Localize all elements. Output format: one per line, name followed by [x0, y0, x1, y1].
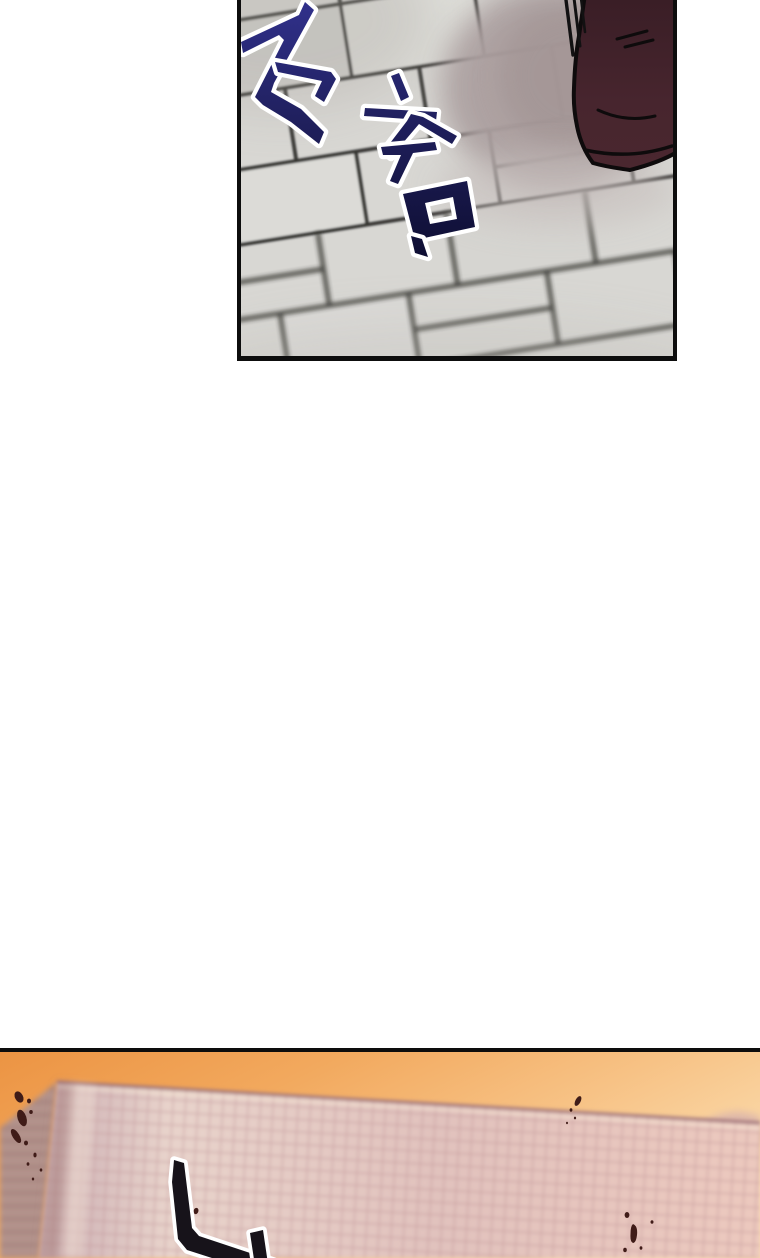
bottom-panel: 니 — [0, 1048, 760, 1258]
panel-gutter — [0, 361, 760, 1048]
sfx-partial-right-stroke — [250, 1230, 268, 1258]
boot — [574, 0, 673, 170]
bottom-panel-art — [0, 1052, 760, 1258]
top-panel: 주춤 — [237, 0, 677, 361]
top-panel-art — [241, 0, 673, 356]
sfx-chum-tail — [411, 236, 428, 257]
comic-page: 주춤 — [0, 0, 760, 1258]
